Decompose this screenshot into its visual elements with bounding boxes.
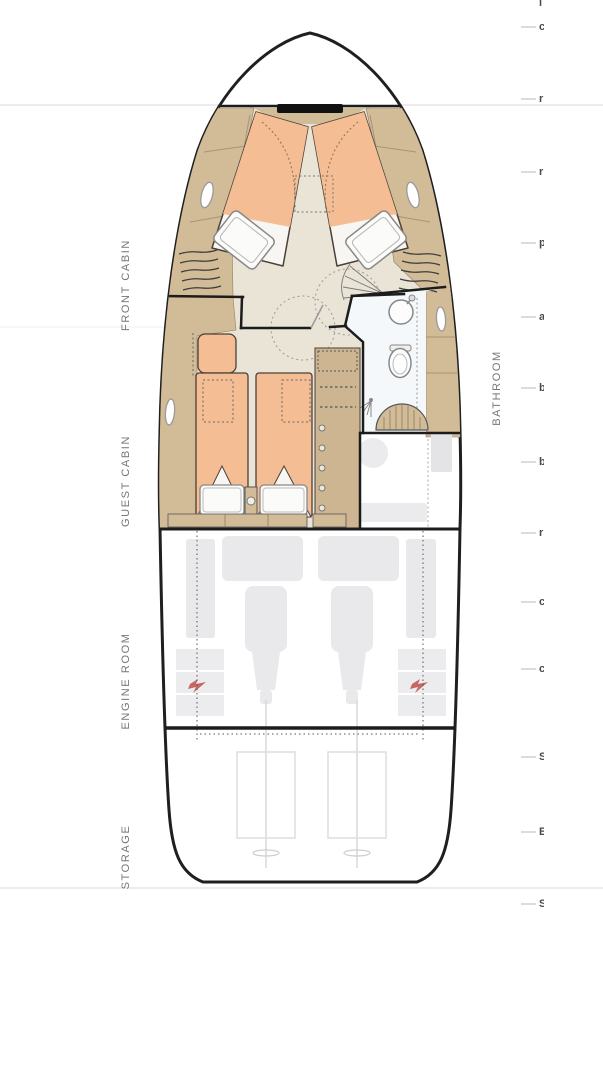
edge-mark-glyph: p <box>539 236 544 250</box>
guest-pillow-starboard <box>260 485 307 515</box>
aft-cabinet <box>431 432 452 472</box>
bow-hatch <box>277 104 343 113</box>
edge-mark-glyph: c <box>539 595 544 609</box>
edge-mark-glyph: r <box>539 165 544 179</box>
edge-mark-glyph: r <box>539 92 544 106</box>
label-bathroom: BATHROOM <box>491 350 503 426</box>
edge-mark-glyph: c <box>539 662 544 676</box>
edge-mark-glyph: E <box>539 825 544 839</box>
edge-mark-dash <box>521 26 536 28</box>
edge-mark-glyph: a <box>539 310 544 324</box>
edge-mark-glyph: b <box>539 455 544 469</box>
edge-mark-dash <box>521 903 536 905</box>
edge-mark-dash <box>521 668 536 670</box>
edge-mark-glyph: b <box>539 381 544 395</box>
label-front-cabin: FRONT CABIN <box>120 239 132 331</box>
edge-mark-dash <box>521 316 536 318</box>
aft-table <box>358 438 388 468</box>
label-storage: STORAGE <box>120 825 132 890</box>
edge-mark-dash <box>521 532 536 534</box>
label-engine-room: ENGINE ROOM <box>120 632 132 729</box>
label-guest-cabin: GUEST CABIN <box>120 435 132 527</box>
edge-mark-glyph: r <box>539 526 544 540</box>
edge-mark-dash <box>521 461 536 463</box>
edge-mark-glyph: S <box>539 897 544 911</box>
boat-plan-svg: FRONT CABIN GUEST CABIN BATHROOM ENGINE … <box>0 0 603 1080</box>
edge-mark-dash <box>521 242 536 244</box>
edge-mark-dash <box>521 171 536 173</box>
side-tank-starboard <box>406 539 436 638</box>
edge-mark-dash <box>521 601 536 603</box>
edge-mark-glyph: c <box>539 20 544 34</box>
guest-seat <box>198 334 236 373</box>
aft-bench <box>358 503 427 522</box>
engine-tank-starboard <box>318 536 399 581</box>
edge-mark-dash <box>521 98 536 100</box>
companionway-column <box>315 348 360 528</box>
edge-mark-dash <box>521 831 536 833</box>
edge-mark-glyph: l <box>539 0 544 10</box>
guest-aft-cabinet-strip <box>168 514 307 527</box>
edge-mark-glyph: S <box>539 750 544 764</box>
engine-tank-port <box>222 536 303 581</box>
guest-pillow-port <box>200 485 244 515</box>
edge-mark-dash <box>521 387 536 389</box>
toilet <box>389 345 411 378</box>
side-tank-port <box>186 539 215 638</box>
edge-mark-dash <box>521 756 536 758</box>
boat-floorplan-page: FRONT CABIN GUEST CABIN BATHROOM ENGINE … <box>0 0 603 1080</box>
